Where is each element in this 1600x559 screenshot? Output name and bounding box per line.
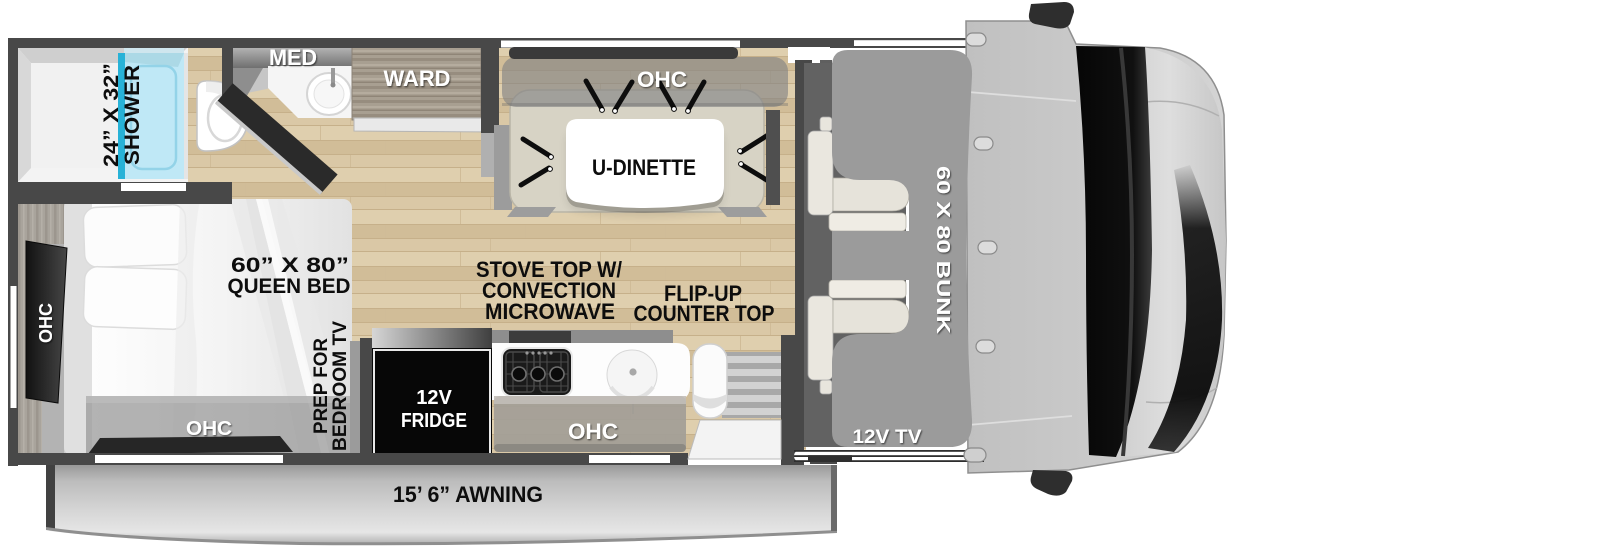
svg-text:OHC: OHC <box>637 67 687 92</box>
svg-text:60” X 80”: 60” X 80” <box>231 254 349 277</box>
svg-text:OHC: OHC <box>186 418 232 440</box>
svg-text:MICROWAVE: MICROWAVE <box>485 299 615 324</box>
svg-text:BEDROOM TV: BEDROOM TV <box>330 321 351 451</box>
svg-text:60 X 80 BUNK: 60 X 80 BUNK <box>933 166 953 334</box>
svg-text:OHC: OHC <box>568 419 618 444</box>
svg-text:24” X 32”: 24” X 32” <box>100 63 123 167</box>
svg-text:COUNTER TOP: COUNTER TOP <box>634 301 775 326</box>
svg-text:FRIDGE: FRIDGE <box>401 410 467 432</box>
svg-text:15’ 6” AWNING: 15’ 6” AWNING <box>393 482 543 507</box>
svg-text:WARD: WARD <box>384 66 451 91</box>
svg-text:PREP FOR: PREP FOR <box>311 338 332 434</box>
svg-text:12V TV: 12V TV <box>853 427 922 448</box>
svg-text:U-DINETTE: U-DINETTE <box>592 155 696 180</box>
svg-text:QUEEN BED: QUEEN BED <box>228 275 351 298</box>
svg-text:12V: 12V <box>416 387 452 409</box>
svg-text:SHOWER: SHOWER <box>121 65 144 165</box>
svg-text:OHC: OHC <box>36 303 56 343</box>
svg-text:MED: MED <box>269 45 317 70</box>
